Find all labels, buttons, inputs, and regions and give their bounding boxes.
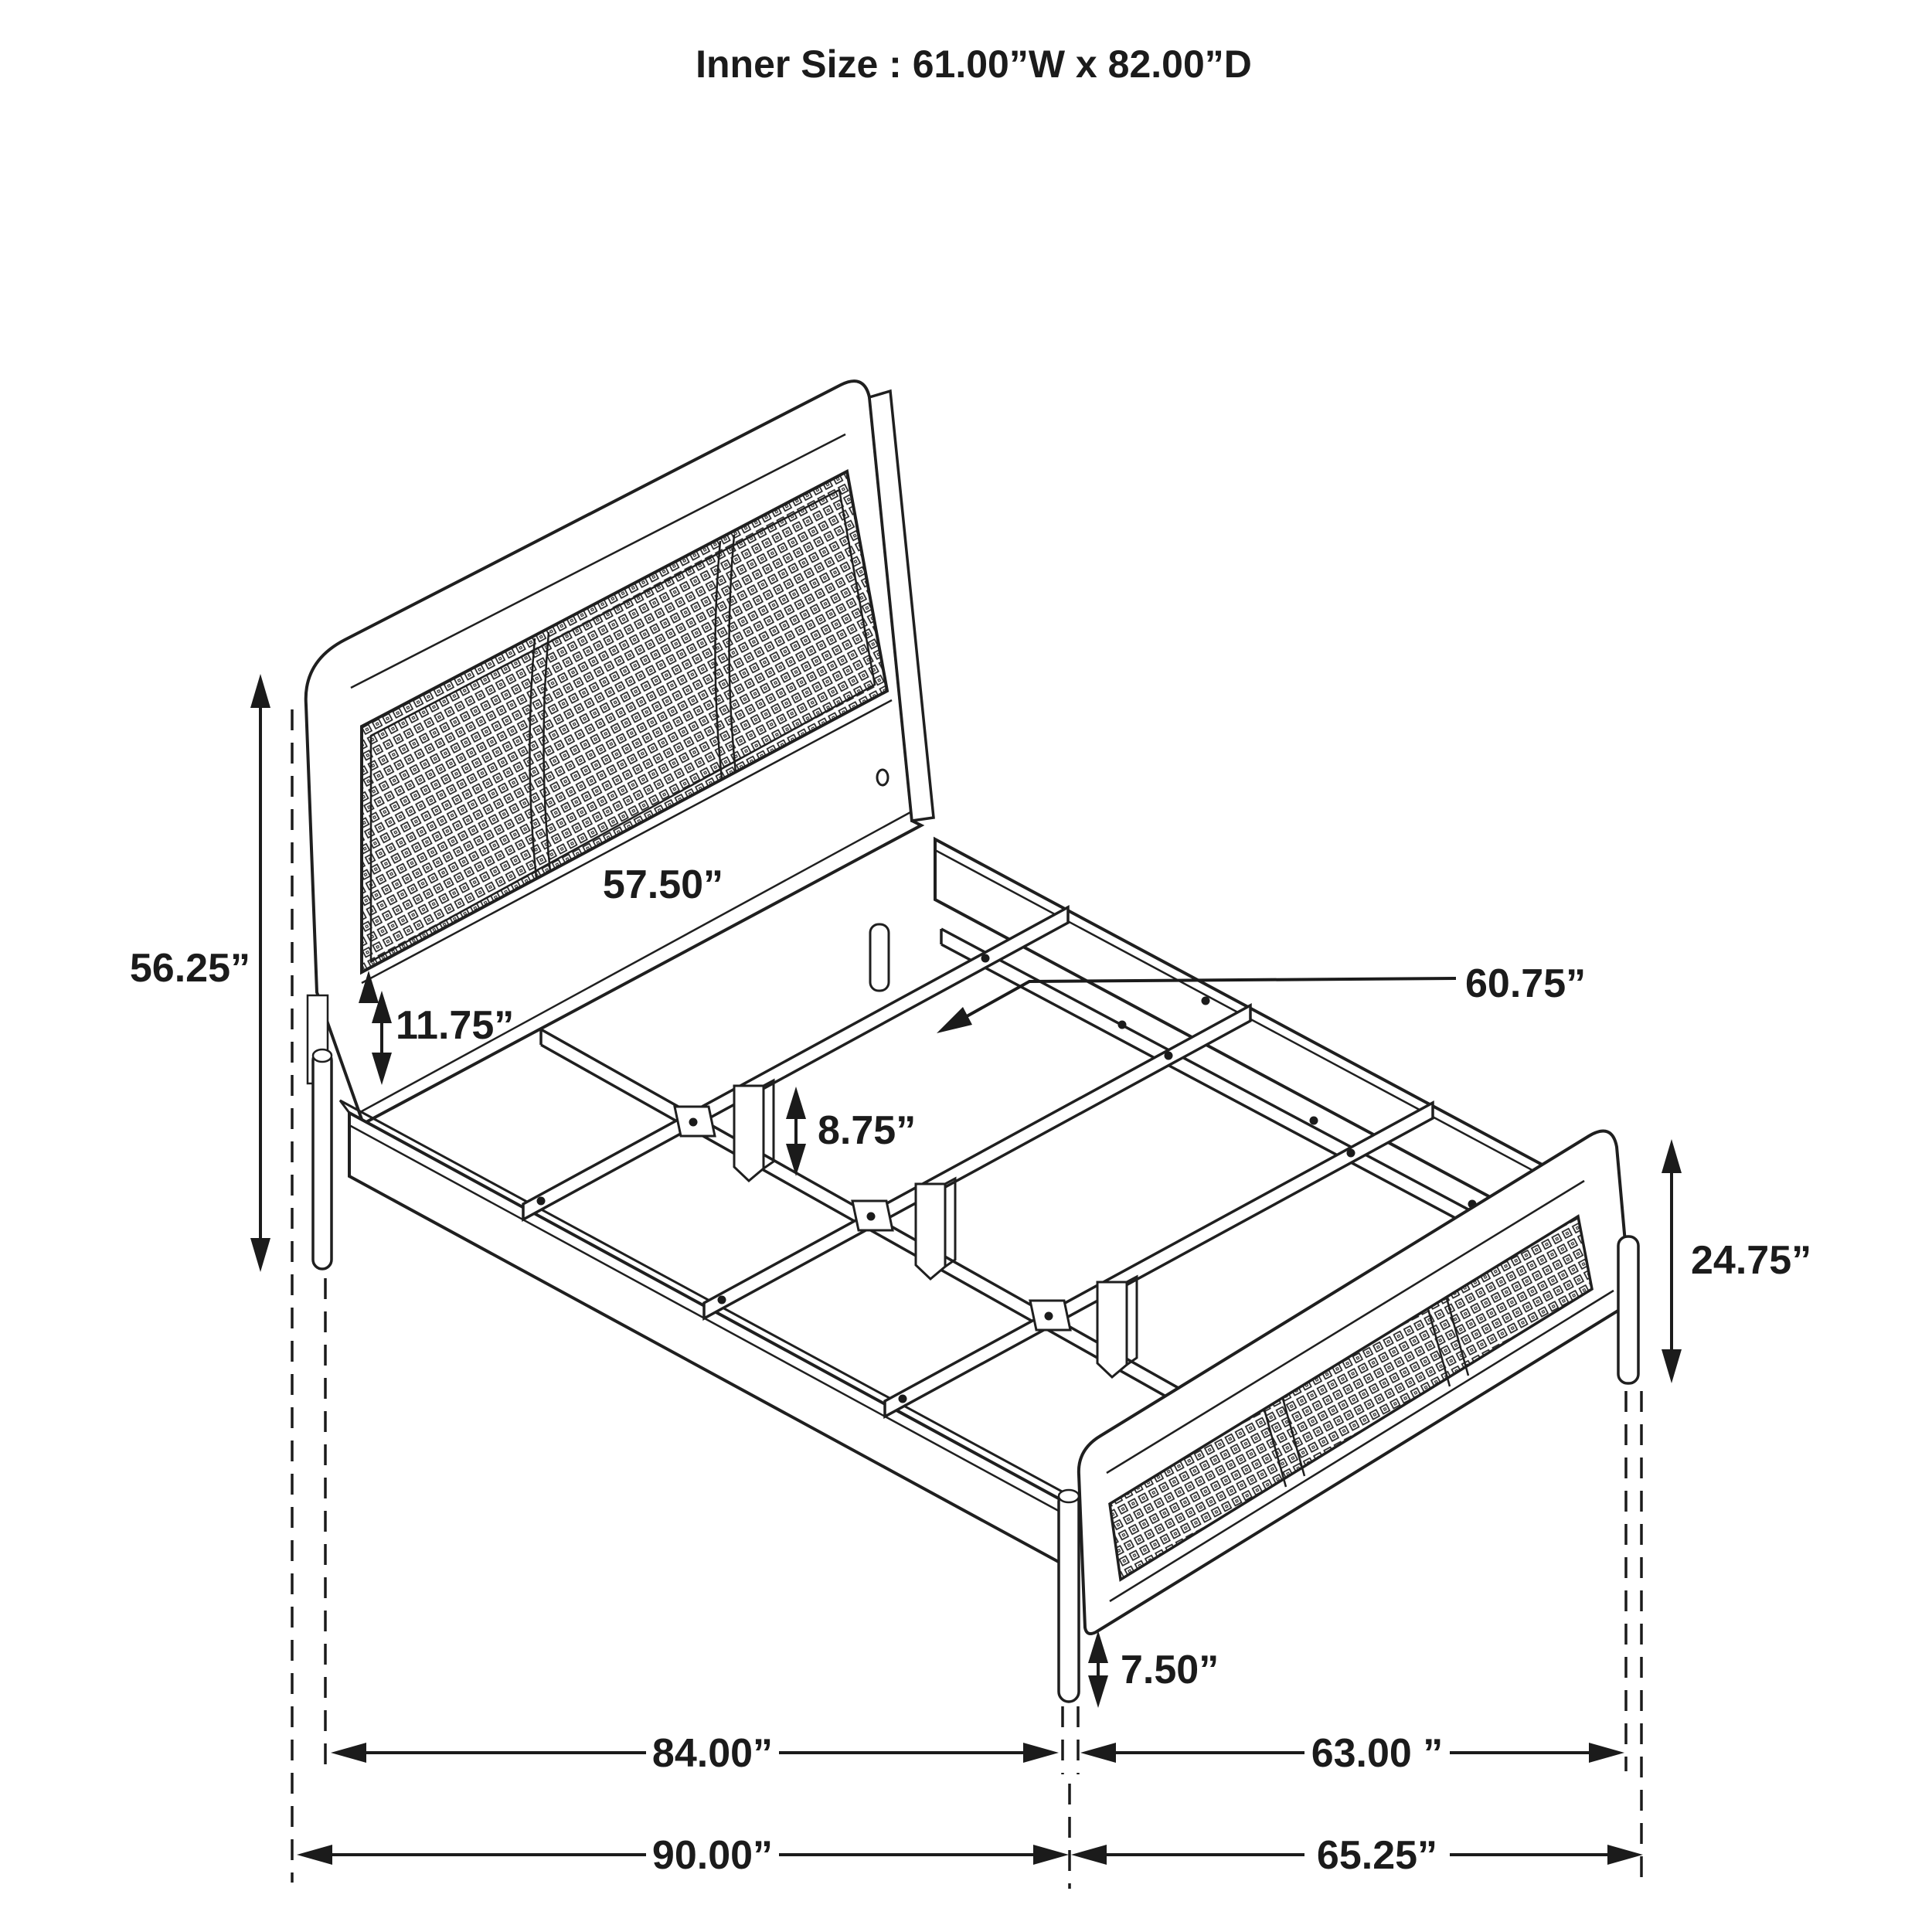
dim-footboard-leg-height: 7.50” (1088, 1631, 1219, 1708)
support-leg-1 (734, 1086, 764, 1181)
left-side-rail (349, 1113, 1074, 1570)
support-leg-3-side (1127, 1277, 1137, 1365)
dim-center-leg-height-label: 8.75” (818, 1108, 916, 1153)
right-side-rail-top-line (935, 850, 1601, 1207)
dim-headboard-height-label: 56.25” (130, 946, 250, 991)
footboard-left-leg-cap (1059, 1490, 1079, 1502)
dim-rail-height-label: 11.75” (396, 1003, 514, 1048)
headboard-front-leg-cap (313, 1049, 332, 1062)
footboard-right-leg (1618, 1236, 1638, 1383)
dim-footboard-leg-height-label: 7.50” (1121, 1648, 1219, 1692)
footboard (1059, 1131, 1638, 1702)
dim-slat-length-label: 60.75” (1465, 961, 1586, 1006)
headboard-front-leg (313, 1049, 332, 1269)
dim-headboard-height: 56.25” (130, 674, 270, 1272)
dim-footboard-overall-width-label: 65.25” (1317, 1833, 1437, 1878)
diagram-title: Inner Size : 61.00”W x 82.00”D (696, 43, 1252, 86)
dim-center-leg-height: 8.75” (786, 1087, 916, 1176)
dim-headboard-width-label: 57.50” (603, 862, 723, 907)
support-leg-3 (1097, 1282, 1127, 1377)
left-side-rail-top-line (349, 1125, 1074, 1519)
dim-frame-inner-length-label: 84.00” (652, 1731, 773, 1776)
dim-frame-overall-length-label: 90.00” (652, 1833, 773, 1878)
dim-row-overall (297, 1845, 1643, 1865)
support-leg-2-side (945, 1179, 955, 1267)
diagram-page: Inner Size : 61.00”W x 82.00”D (0, 0, 1932, 1932)
dim-footboard-height: 24.75” (1662, 1139, 1811, 1383)
headboard-rear-leg (870, 924, 889, 991)
bed-dimension-diagram: Inner Size : 61.00”W x 82.00”D (0, 0, 1932, 1932)
dim-footboard-height-label: 24.75” (1691, 1238, 1811, 1283)
support-leg-2 (916, 1184, 945, 1279)
headboard-stile-hole (877, 770, 888, 785)
footboard-left-leg (1059, 1492, 1079, 1702)
dim-footboard-inner-width-label: 63.00 ” (1311, 1731, 1444, 1776)
